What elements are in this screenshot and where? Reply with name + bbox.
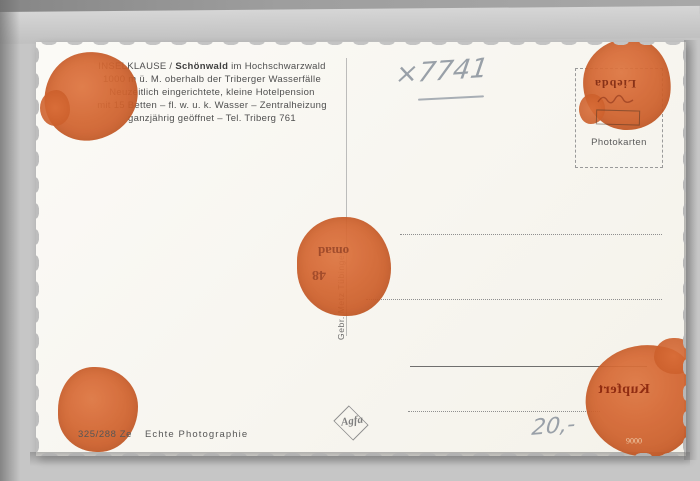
ghost-print-stamp-area: Liebda <box>594 76 636 91</box>
address-dotted-line-2 <box>366 299 662 300</box>
handwritten-price: 20,- <box>531 412 577 441</box>
address-dotted-line-1 <box>400 234 662 235</box>
ghost-print-center-line1: omad <box>318 243 349 259</box>
background-left-shadow <box>0 0 20 481</box>
paint-blob-bottom-right-bump <box>654 338 686 374</box>
ghost-print-negative-number: 0006 <box>626 436 642 445</box>
handwritten-catalog-number: ×7741 <box>393 53 490 90</box>
deckle-edge-top <box>36 42 686 48</box>
card-right-shadow <box>684 40 698 460</box>
scanned-postcard-photo: INSELKLAUSE / Schönwald im Hochschwarzwa… <box>0 0 700 481</box>
ghost-print-center-line2: 48 <box>312 266 326 282</box>
stamp-box-label: Photokarten <box>576 137 662 148</box>
background-card-edge <box>0 6 700 44</box>
imprint-number: 325/288 Ze <box>78 429 132 440</box>
postcard-back: INSELKLAUSE / Schönwald im Hochschwarzwa… <box>36 42 686 456</box>
agfa-logo: Agfa <box>326 406 378 442</box>
info-line-1-bold: Schönwald <box>175 61 228 72</box>
paint-blob-top-left-bump <box>40 90 70 126</box>
ghost-box-outline <box>596 109 640 125</box>
info-line-1-suffix: im Hochschwarzwald <box>228 61 326 72</box>
handwritten-underline <box>418 95 484 100</box>
card-bottom-shadow <box>30 452 690 466</box>
imprint-label: Echte Photographie <box>145 429 248 440</box>
ghost-print-kupfert-mirrored: Kupfert <box>598 382 650 398</box>
ghost-script-squiggle-icon <box>596 94 636 108</box>
